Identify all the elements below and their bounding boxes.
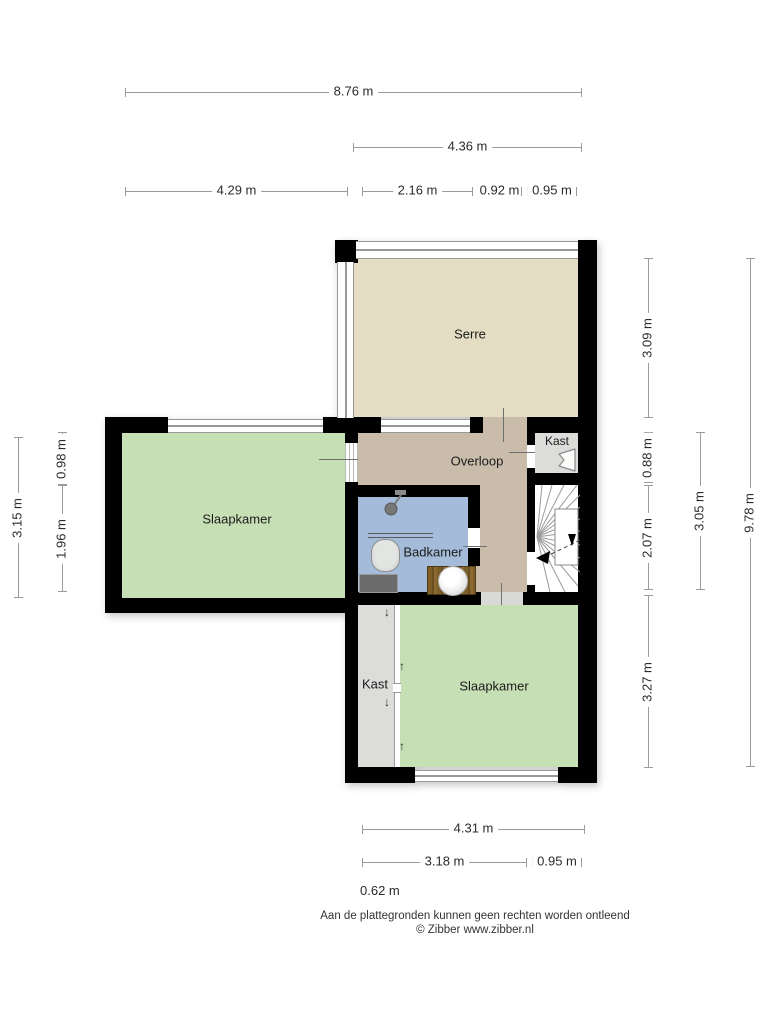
door-opening-marker <box>503 408 504 442</box>
room-label-serre: Serre <box>454 327 486 342</box>
wall <box>323 417 381 433</box>
dimension-bottom-seg2: 0.95 m <box>532 858 582 867</box>
dimension-value: 3.27 m <box>641 657 656 707</box>
dimension-value: 9.78 m <box>743 488 758 538</box>
dimension-left-seg2: 1.96 m <box>58 485 67 592</box>
dimension-top-seg2: 2.16 m <box>362 187 473 196</box>
floorplan-page: ↓ ↑ ↓ ↑ Serre Overloop Badkamer Kast Sla… <box>0 0 768 1024</box>
dimension-top-serre: 4.36 m <box>353 143 582 152</box>
door-opening <box>527 552 535 585</box>
dimension-value: 4.29 m <box>212 184 262 199</box>
radiator <box>359 574 398 593</box>
dimension-right-kast: 0.88 m <box>644 432 653 483</box>
washbasin-icon <box>371 539 400 572</box>
dimension-right-slaapkamer: 3.27 m <box>644 595 653 768</box>
door-opening-marker <box>501 583 502 605</box>
dimension-right-serre: 3.09 m <box>644 258 653 418</box>
dimension-right-trap: 2.07 m <box>644 485 653 590</box>
dimension-top-total: 8.76 m <box>125 88 582 97</box>
dimension-value: 0.95 m <box>532 855 582 870</box>
wall <box>345 482 358 598</box>
shower-screen <box>368 533 433 538</box>
wall <box>527 473 583 485</box>
threshold-overloop-slaapkamer <box>481 592 523 605</box>
dimension-value: 4.31 m <box>449 822 499 837</box>
window <box>168 419 323 433</box>
doorway-serre-overloop <box>483 417 527 433</box>
dimension-right-total: 9.78 m <box>746 258 755 767</box>
dimension-value: 8.76 m <box>329 85 379 100</box>
wall <box>358 485 468 497</box>
room-label-slaapkamer-links: Slaapkamer <box>202 512 271 527</box>
wall <box>558 767 597 783</box>
dimension-left-total: 3.15 m <box>14 437 23 598</box>
wall <box>468 548 480 566</box>
door-opening <box>345 443 358 482</box>
wall <box>527 417 580 433</box>
room-label-overloop: Overloop <box>451 454 504 469</box>
footer-disclaimer: Aan de plattegronden kunnen geen rechten… <box>182 909 768 923</box>
sliding-door-arrow-icon: ↑ <box>399 740 405 752</box>
wall <box>468 485 480 528</box>
wall <box>105 417 122 613</box>
door-opening <box>527 445 535 468</box>
dimension-top-seg3: 0.92 m <box>477 187 522 196</box>
round-basin-icon <box>438 566 468 596</box>
shower-icon <box>382 488 408 518</box>
wall <box>345 433 358 443</box>
window <box>381 419 470 433</box>
dimension-bottom-seg1: 3.18 m <box>362 858 527 867</box>
footer-copyright: © Zibber www.zibber.nl <box>182 923 768 937</box>
room-label-badkamer: Badkamer <box>403 545 462 560</box>
dimension-top-seg4: 0.95 m <box>527 187 577 196</box>
door-opening-marker <box>463 546 487 547</box>
dimension-bottom-total: 4.31 m <box>362 825 585 834</box>
dimension-value: 0.88 m <box>641 433 656 483</box>
room-label-kast-onder: Kast <box>362 677 388 692</box>
sliding-door-arrow-icon: ↓ <box>384 696 390 708</box>
dimension-top-seg1: 4.29 m <box>125 187 348 196</box>
wall <box>345 598 358 783</box>
wall <box>527 433 535 445</box>
dimension-value: 3.05 m <box>693 486 708 536</box>
window <box>337 262 354 418</box>
sliding-door-handle <box>393 683 401 693</box>
dimension-value: 4.36 m <box>443 140 493 155</box>
sliding-door-arrow-icon: ↑ <box>399 660 405 672</box>
door-opening-marker <box>319 459 358 460</box>
dimension-value: 1.96 m <box>55 514 70 564</box>
dimension-bottom-seg3: 0.62 m <box>360 883 400 898</box>
dimension-value: 2.16 m <box>393 184 443 199</box>
door-opening <box>468 528 480 548</box>
window <box>415 770 558 782</box>
footer: Aan de plattegronden kunnen geen rechten… <box>182 909 768 937</box>
window <box>356 241 578 259</box>
wall <box>527 585 535 592</box>
dimension-value: 0.95 m <box>527 184 577 199</box>
dimension-value: 3.15 m <box>11 493 26 543</box>
room-label-slaapkamer-onder: Slaapkamer <box>459 679 528 694</box>
wall <box>527 485 535 552</box>
dimension-left-seg1: 0.98 m <box>58 432 67 485</box>
wall <box>578 240 597 783</box>
wall <box>335 240 358 263</box>
staircase <box>535 485 580 592</box>
sliding-door-arrow-icon: ↓ <box>384 606 390 618</box>
dimension-value: 3.09 m <box>641 313 656 363</box>
wardrobe-icon <box>553 446 579 473</box>
wall <box>470 417 483 433</box>
wall <box>345 767 415 783</box>
dimension-value: 0.98 m <box>55 434 70 484</box>
dimension-value: 2.07 m <box>641 513 656 563</box>
dimension-value: 0.92 m <box>475 184 525 199</box>
door-opening-marker <box>509 452 535 453</box>
wall <box>523 592 597 605</box>
wall <box>105 598 358 613</box>
dimension-value: 3.18 m <box>420 855 470 870</box>
room-label-kast-boven: Kast <box>545 434 569 448</box>
dimension-right-mid: 3.05 m <box>696 432 705 590</box>
